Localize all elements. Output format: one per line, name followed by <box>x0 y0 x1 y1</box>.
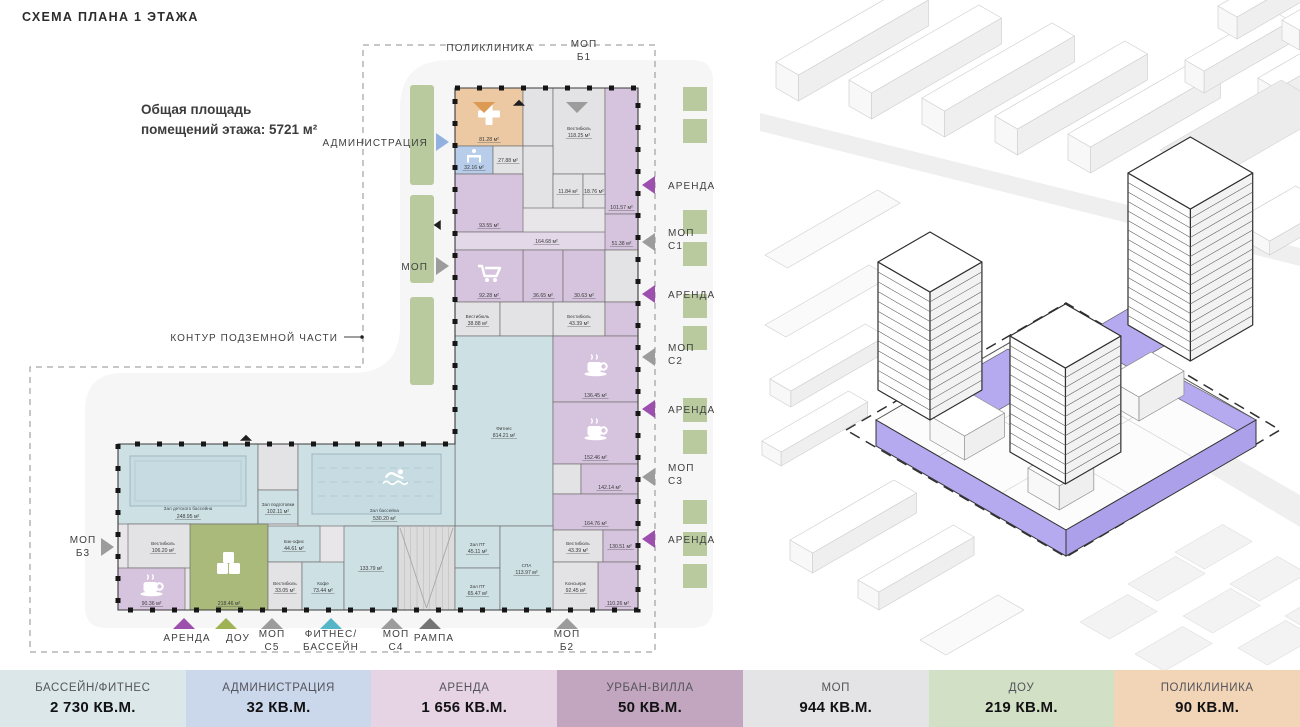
callout-label: АДМИНИСТРАЦИЯ <box>323 138 428 149</box>
svg-text:Зал подготовки: Зал подготовки <box>262 502 295 507</box>
room-Вестибюль: Вестибюль43.39 м² <box>553 302 605 336</box>
legend-label: ДОУ <box>1009 682 1035 694</box>
callout-label: АРЕНДА <box>668 290 715 301</box>
plan-and-iso-scene: 81.28 м²Вестибюль118.25 м²101.57 м²32.16… <box>0 0 1300 670</box>
svg-text:45.11 м²: 45.11 м² <box>468 549 488 555</box>
room: 152.46 м² <box>553 402 638 464</box>
svg-text:92.28 м²: 92.28 м² <box>479 293 499 299</box>
svg-text:51.38 м²: 51.38 м² <box>612 241 632 247</box>
room-Фитнес: Фитнес814.21 м² <box>455 336 553 526</box>
svg-text:90.36 м²: 90.36 м² <box>142 601 162 607</box>
callout-label: С3 <box>668 476 683 487</box>
legend-item-ДОУ: ДОУ219 КВ.М. <box>929 670 1115 727</box>
room-Зал ПТ: Зал ПТ45.11 м² <box>455 526 500 568</box>
room-Вестибюль: Вестибюль38.88 м² <box>455 302 500 336</box>
room: 133.79 м² <box>344 526 398 610</box>
callout-label: АРЕНДА <box>668 535 715 546</box>
svg-text:164.76 м²: 164.76 м² <box>584 521 607 527</box>
room: 130.51 м² <box>603 530 638 562</box>
svg-text:43.39 м²: 43.39 м² <box>568 548 588 554</box>
callout-label: Б3 <box>76 548 90 559</box>
svg-text:33.05 м²: 33.05 м² <box>275 588 295 594</box>
svg-text:106.20 м²: 106.20 м² <box>152 548 175 554</box>
room <box>523 88 553 146</box>
svg-text:164.68 м²: 164.68 м² <box>535 239 558 245</box>
floor-plan: 81.28 м²Вестибюль118.25 м²101.57 м²32.16… <box>30 39 715 653</box>
room: 101.57 м² <box>605 88 638 214</box>
svg-text:92.45 м²: 92.45 м² <box>566 588 586 594</box>
legend-item-АДМИНИСТРАЦИЯ: АДМИНИСТРАЦИЯ32 КВ.М. <box>186 670 372 727</box>
legend-label: БАССЕЙН/ФИТНЕС <box>35 682 150 694</box>
svg-text:Бэк-офис: Бэк-офис <box>284 539 305 544</box>
legend-value: 2 730 КВ.М. <box>50 699 136 716</box>
room <box>553 464 581 494</box>
svg-text:Зал детского бассейна: Зал детского бассейна <box>164 505 213 511</box>
room-Зал детского бассейна: Зал детского бассейна248.95 м² <box>118 444 258 524</box>
iso-tower <box>1010 304 1121 484</box>
legend-label: АДМИНИСТРАЦИЯ <box>222 682 335 694</box>
callout-label: С5 <box>265 642 280 653</box>
svg-text:248.95 м²: 248.95 м² <box>177 514 200 520</box>
iso-tower <box>878 232 982 420</box>
room: 92.28 м² <box>455 250 523 302</box>
svg-text:Кофе: Кофе <box>317 581 329 586</box>
room <box>398 526 455 610</box>
legend: БАССЕЙН/ФИТНЕС2 730 КВ.М.АДМИНИСТРАЦИЯ32… <box>0 670 1300 727</box>
legend-value: 1 656 КВ.М. <box>421 699 507 716</box>
legend-item-МОП: МОП944 КВ.М. <box>743 670 929 727</box>
legend-label: ПОЛИКЛИНИКА <box>1161 682 1254 694</box>
greenery-square <box>683 430 707 454</box>
room <box>523 146 553 208</box>
greenery-strip <box>410 85 434 185</box>
callout-label: С4 <box>389 642 404 653</box>
callout-label: РАМПА <box>414 633 454 644</box>
room-Зал подготовки: Зал подготовки102.11 м² <box>258 490 298 524</box>
callout-label: ПОЛИКЛИНИКА <box>446 43 533 54</box>
callout-label: Б1 <box>577 52 591 63</box>
callout-label: МОП <box>668 463 695 474</box>
callout-label: МОП <box>668 343 695 354</box>
svg-text:Зал бассейна: Зал бассейна <box>370 507 400 513</box>
greenery-strip <box>410 297 434 385</box>
callout-label: МОП <box>401 262 428 273</box>
room: 136.45 м² <box>553 336 638 402</box>
svg-text:814.21 м²: 814.21 м² <box>493 433 516 439</box>
iso-map <box>760 0 1300 670</box>
room: 11.84 м² <box>553 174 583 208</box>
contour-label: КОНТУР ПОДЗЕМНОЙ ЧАСТИ <box>170 331 338 344</box>
svg-text:93.55 м²: 93.55 м² <box>479 223 499 229</box>
legend-item-ПОЛИКЛИНИКА: ПОЛИКЛИНИКА90 КВ.М. <box>1114 670 1300 727</box>
svg-text:130.51 м²: 130.51 м² <box>609 544 632 550</box>
svg-text:43.39 м²: 43.39 м² <box>569 321 589 327</box>
iso-city-block <box>858 525 974 610</box>
svg-text:133.79 м²: 133.79 м² <box>360 566 383 572</box>
room-Консьерж: Консьерж92.45 м² <box>553 562 598 610</box>
greenery-square <box>683 500 707 524</box>
callout-label: ФИТНЕС/ <box>305 629 358 640</box>
room-Кофе: Кофе73.44 м² <box>302 562 344 610</box>
svg-text:81.28 м²: 81.28 м² <box>479 137 499 143</box>
svg-text:30.63 м²: 30.63 м² <box>574 293 594 299</box>
callout-label: С2 <box>668 356 683 367</box>
legend-value: 90 КВ.М. <box>1175 699 1239 716</box>
room: 36.65 м² <box>523 250 563 302</box>
svg-text:136.45 м²: 136.45 м² <box>584 393 607 399</box>
callout-label: БАССЕЙН <box>303 640 359 653</box>
room <box>605 302 638 336</box>
svg-text:118.25 м²: 118.25 м² <box>568 133 590 139</box>
svg-text:38.88 м²: 38.88 м² <box>468 321 488 327</box>
svg-text:Фитнес: Фитнес <box>496 426 512 431</box>
svg-text:113.97 м²: 113.97 м² <box>515 570 537 576</box>
room: 110.26 м² <box>598 562 638 610</box>
callout-label: МОП <box>554 629 581 640</box>
legend-item-АРЕНДА: АРЕНДА1 656 КВ.М. <box>371 670 557 727</box>
room: 32.16 м² <box>455 146 493 174</box>
legend-label: УРБАН-ВИЛЛА <box>606 682 693 694</box>
svg-text:Зал ПТ: Зал ПТ <box>470 584 486 589</box>
legend-value: 944 КВ.М. <box>799 699 872 716</box>
room: 93.55 м² <box>455 174 523 232</box>
svg-text:Вестибюль: Вестибюль <box>566 541 590 546</box>
legend-item-БАССЕЙН/ФИТНЕС: БАССЕЙН/ФИТНЕС2 730 КВ.М. <box>0 670 186 727</box>
room-Зал ПТ: Зал ПТ65.47 м² <box>455 568 500 610</box>
svg-text:152.46 м²: 152.46 м² <box>584 455 607 461</box>
callout-label: МОП <box>383 629 410 640</box>
svg-text:36.65 м²: 36.65 м² <box>533 293 553 299</box>
svg-text:18.76 м²: 18.76 м² <box>584 189 604 195</box>
legend-item-УРБАН-ВИЛЛА: УРБАН-ВИЛЛА50 КВ.М. <box>557 670 743 727</box>
room-СПА: СПА113.97 м² <box>500 526 553 610</box>
room-Зал бассейна: Зал бассейна530.20 м² <box>298 444 455 526</box>
callout-label: МОП <box>70 535 97 546</box>
room: 164.76 м² <box>553 494 638 530</box>
callout-label: АРЕНДА <box>668 405 715 416</box>
room: 18.76 м² <box>582 174 605 208</box>
svg-text:32.16 м²: 32.16 м² <box>464 165 484 171</box>
room: 90.36 м² <box>118 568 185 610</box>
room: 30.63 м² <box>563 250 605 302</box>
callout-label: МОП <box>668 228 695 239</box>
svg-text:73.44 м²: 73.44 м² <box>313 588 333 594</box>
legend-value: 219 КВ.М. <box>985 699 1058 716</box>
callout-label: ДОУ <box>226 633 250 644</box>
room-Вестибюль: Вестибюль43.39 м² <box>553 530 603 562</box>
svg-text:44.61 м²: 44.61 м² <box>284 546 304 552</box>
callout-label: МОП <box>259 629 286 640</box>
callout-label: АРЕНДА <box>668 181 715 192</box>
room <box>258 444 298 490</box>
greenery-square <box>683 87 707 111</box>
iso-city-block <box>762 391 868 466</box>
svg-text:27.88 м²: 27.88 м² <box>498 158 518 164</box>
svg-text:142.14 м²: 142.14 м² <box>598 485 621 491</box>
svg-text:Вестибюль: Вестибюль <box>567 126 591 131</box>
page: СХЕМА ПЛАНА 1 ЭТАЖА Общая площадь помеще… <box>0 0 1300 727</box>
svg-text:Консьерж: Консьерж <box>565 581 587 586</box>
svg-text:Вестибюль: Вестибюль <box>466 314 490 319</box>
room-Вестибюль: Вестибюль33.05 м² <box>268 562 302 610</box>
room-Бэк-офис: Бэк-офис44.61 м² <box>268 526 320 562</box>
svg-text:218.46 м²: 218.46 м² <box>218 601 241 607</box>
callout-label: МОП <box>571 39 598 50</box>
svg-text:Вестибюль: Вестибюль <box>273 581 297 586</box>
svg-text:Вестибюль: Вестибюль <box>151 541 175 546</box>
svg-text:11.84 м²: 11.84 м² <box>558 189 578 195</box>
svg-text:110.26 м²: 110.26 м² <box>607 601 629 607</box>
svg-text:101.57 м²: 101.57 м² <box>610 205 633 211</box>
room: 218.46 м² <box>190 524 268 610</box>
svg-text:Вестибюль: Вестибюль <box>567 314 591 319</box>
room-Вестибюль: Вестибюль118.25 м² <box>553 88 605 174</box>
room-Вестибюль: Вестибюль106.20 м² <box>128 524 198 568</box>
greenery-square <box>683 564 707 588</box>
svg-text:СПА: СПА <box>522 563 533 568</box>
legend-label: АРЕНДА <box>439 682 489 694</box>
rooms: 81.28 м²Вестибюль118.25 м²101.57 м²32.16… <box>118 88 638 610</box>
svg-text:65.47 м²: 65.47 м² <box>468 591 488 597</box>
callout-label: АРЕНДА <box>163 633 210 644</box>
legend-label: МОП <box>821 682 850 694</box>
svg-text:102.11 м²: 102.11 м² <box>267 509 289 515</box>
room: 51.38 м² <box>605 214 638 250</box>
room: 81.28 м² <box>455 88 523 146</box>
legend-value: 50 КВ.М. <box>618 699 682 716</box>
room <box>500 302 553 336</box>
room <box>605 250 638 302</box>
room: 142.14 м² <box>581 464 638 494</box>
greenery-square <box>683 119 707 143</box>
greenery-square <box>683 242 707 266</box>
svg-text:Зал ПТ: Зал ПТ <box>470 542 486 547</box>
iso-tower <box>1128 137 1253 361</box>
legend-value: 32 КВ.М. <box>247 699 311 716</box>
svg-text:530.20 м²: 530.20 м² <box>373 516 396 522</box>
room: 27.88 м² <box>493 146 523 174</box>
callout-label: Б2 <box>560 642 574 653</box>
callout-label: С1 <box>668 241 683 252</box>
